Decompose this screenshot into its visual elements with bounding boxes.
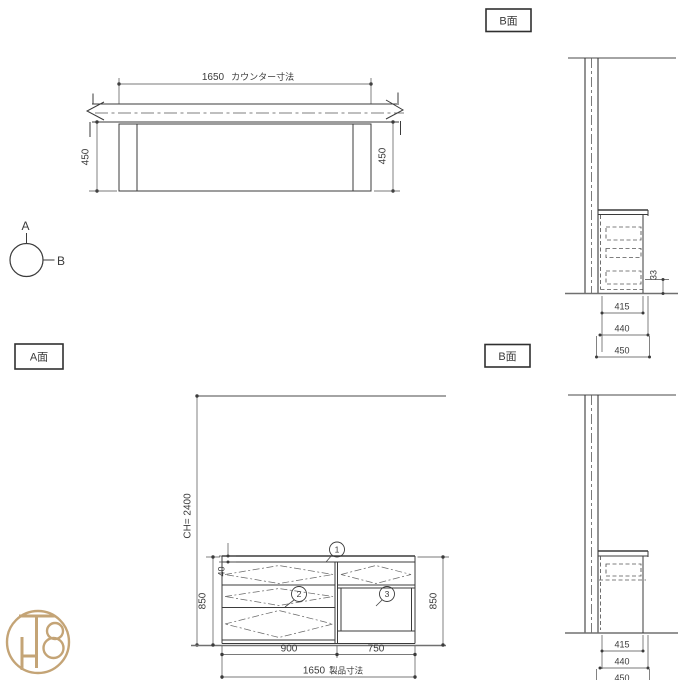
b-view-label-top-text: B面 [499, 16, 517, 28]
dim-counter-width: 1650カウンター寸法 [202, 71, 294, 83]
cad-drawing: 1650カウンター寸法 450 450 A B A面 [0, 0, 680, 680]
plan-cabinet-outline [119, 124, 371, 191]
dim-depth-outer: 450 [614, 673, 629, 680]
hidden-drawer-3 [606, 271, 641, 284]
break-mark-left [87, 102, 104, 120]
elevation-a-view: CH= 2400 [183, 394, 450, 679]
direction-indicator: A B [10, 219, 65, 277]
dim-kick-group: 33 [645, 270, 669, 295]
drawer-symbol-4 [341, 566, 411, 584]
section-b-bottom-dims: 415 440 450 [597, 635, 650, 680]
cabinet-side [598, 551, 648, 633]
b-view-label-bottom-text: B面 [498, 351, 516, 363]
direction-circle [10, 244, 43, 277]
dim-total-width: 1650製品寸法 [303, 666, 363, 677]
cabinet-side [598, 210, 648, 293]
drawer-symbol-2 [225, 589, 333, 606]
callout-2: 2 [297, 589, 302, 599]
dim-total-width-value: 1650 [303, 666, 326, 677]
dim-counter-thickness-group: 40 [217, 543, 237, 577]
drawer-symbol-1 [225, 566, 333, 584]
drawer-symbol-3 [225, 611, 333, 638]
drawing-canvas: 1650カウンター寸法 450 450 A B A面 [0, 0, 680, 680]
hidden-drawer-1 [606, 227, 641, 240]
callouts: 1 2 3 [285, 542, 395, 607]
callout-1: 1 [335, 545, 340, 555]
dim-counter-thickness: 40 [217, 566, 227, 576]
dim-depth-inner: 415 [614, 302, 629, 312]
logo-letter-h [22, 637, 37, 670]
cabinet-front [222, 556, 415, 644]
dim-total-width-label: 製品寸法 [329, 666, 363, 676]
dim-depth-outer: 450 [614, 346, 629, 356]
dim-depth-left: 450 [81, 148, 92, 165]
brand-logo [7, 611, 69, 673]
dim-counter-width-label: カウンター寸法 [231, 71, 294, 82]
dim-depth-right: 450 [378, 147, 389, 164]
direction-a-label: A [21, 219, 29, 233]
dim-ceiling-height: CH= 2400 [183, 493, 194, 539]
dim-counter-width-value: 1650 [202, 72, 225, 83]
dim-depth-inner: 415 [614, 640, 629, 650]
logo-digit-8 [44, 623, 64, 658]
dim-height-right: 850 [429, 592, 440, 609]
dim-height-left: 850 [198, 592, 209, 609]
hidden-drawer-1 [606, 564, 641, 576]
dim-width-right: 750 [368, 644, 385, 655]
section-b-bottom-view: 415 440 450 [565, 395, 678, 680]
dim-depth-mid: 440 [614, 324, 629, 334]
dim-depth-mid: 440 [614, 657, 629, 667]
section-b-top-view: 33 415 440 450 [565, 58, 678, 359]
dim-width-left: 900 [281, 644, 298, 655]
a-view-label: A面 [15, 344, 63, 369]
b-view-label-bottom: B面 [485, 345, 530, 368]
section-b-top-dims: 415 440 450 [595, 296, 651, 359]
plan-view: 1650カウンター寸法 450 450 [81, 71, 405, 193]
break-mark-right [386, 100, 403, 119]
hidden-drawer-2 [606, 249, 641, 258]
callout-3: 3 [385, 589, 390, 599]
direction-b-label: B [57, 254, 65, 268]
b-view-label-top: B面 [486, 9, 531, 32]
dim-kick-height: 33 [649, 270, 659, 280]
a-view-label-text: A面 [30, 352, 48, 364]
